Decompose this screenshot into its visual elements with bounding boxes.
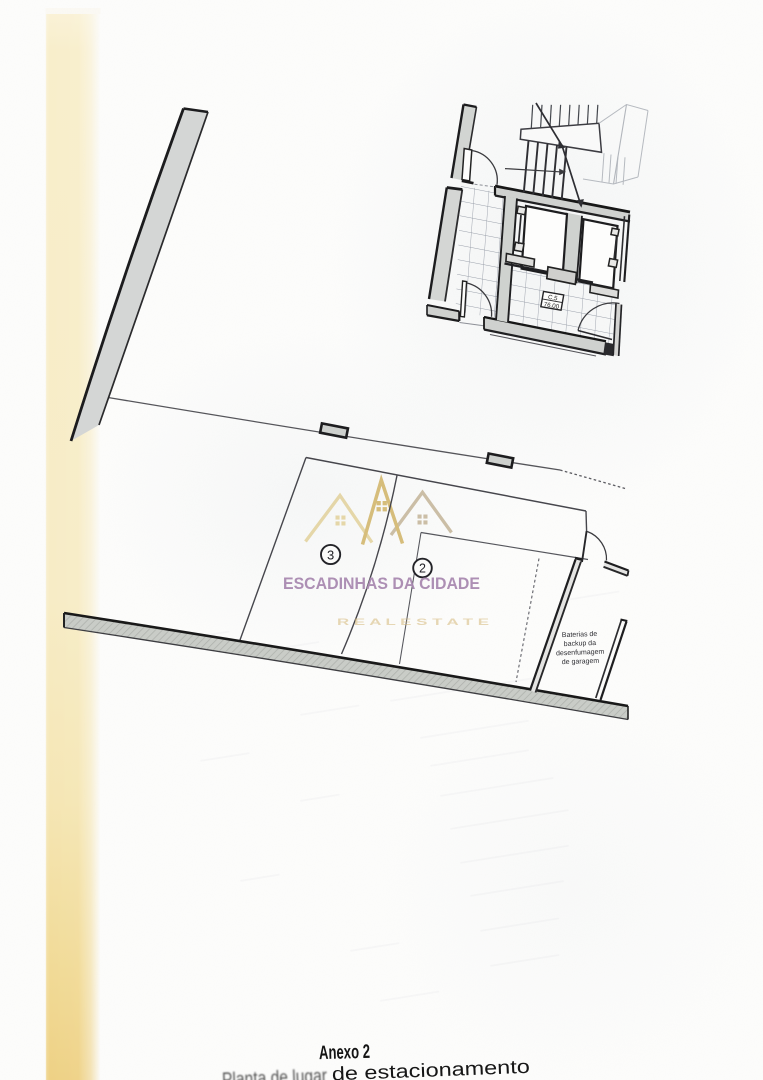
svg-text:de garagem: de garagem (562, 658, 600, 666)
svg-text:Anexo 2: Anexo 2 (319, 1041, 371, 1064)
svg-text:Baterias de: Baterias de (562, 631, 598, 639)
svg-text:ESCADINHAS DA CIDADE: ESCADINHAS DA CIDADE (283, 575, 480, 593)
svg-text:backup da: backup da (564, 640, 597, 648)
svg-text:3: 3 (327, 547, 334, 562)
svg-text:2: 2 (419, 562, 426, 576)
svg-text:R E A L E S T A T E: R E A L E S T A T E (337, 617, 489, 627)
